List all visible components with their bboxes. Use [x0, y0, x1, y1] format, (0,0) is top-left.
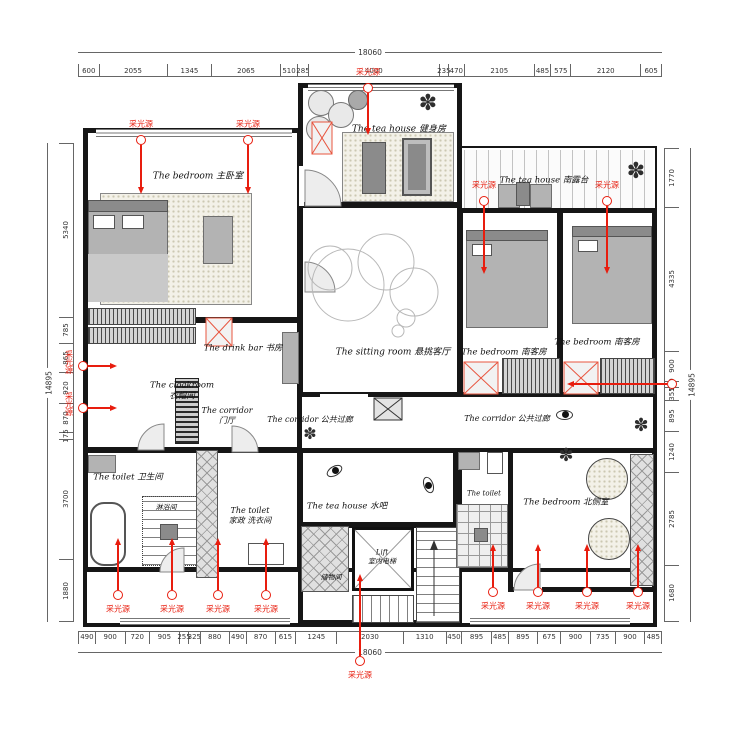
- dim-segment-value: 900: [104, 633, 117, 641]
- dim-segment: 235: [439, 64, 448, 76]
- dim-segment-value: 1240: [668, 443, 676, 461]
- light-source-arrow-tip: [357, 574, 363, 581]
- south-wardrobe-1: [502, 358, 560, 394]
- dim-segment: 1345: [167, 64, 212, 76]
- dim-segment-value: 470: [450, 67, 463, 75]
- room-label: The corridor 公共过廊: [267, 415, 353, 425]
- light-source-arrow-tip: [535, 544, 541, 551]
- dim-segments-bottom: 4909007209052553258804908706151245203013…: [78, 631, 662, 644]
- dim-segment: 900: [665, 351, 679, 382]
- south-bed-2-headboard: [572, 226, 652, 237]
- dim-segment-value: 485: [647, 633, 660, 641]
- room-label: The bedroom 北侧室: [523, 498, 608, 509]
- south-bed-2-pillow: [578, 240, 598, 252]
- light-source-marker: [213, 590, 223, 600]
- light-source-marker: [533, 587, 543, 597]
- room-label: The bedroom 南客房: [461, 348, 546, 359]
- dim-segment-value: 450: [447, 633, 460, 641]
- dim-total-top: 18060: [78, 52, 662, 62]
- light-source-marker: [633, 587, 643, 597]
- dim-segment: 900: [560, 632, 590, 644]
- dim-segment: 1880: [59, 559, 73, 622]
- light-source-label: 采光源: [472, 180, 496, 191]
- south-wardrobe-2: [600, 358, 655, 394]
- room-label: The toilet 卫生间: [93, 473, 163, 484]
- dim-segment-value: 355: [668, 388, 676, 401]
- dim-segment: 880: [200, 632, 229, 644]
- dim-segment: 355: [665, 387, 679, 400]
- dim-segment: 895: [461, 632, 491, 644]
- north-bedroom-wardrobe: [630, 454, 654, 586]
- light-source-marker: [113, 590, 123, 600]
- light-source-marker: [602, 196, 612, 206]
- dim-segment: 2055: [99, 64, 167, 76]
- room-label: The toilet: [467, 490, 501, 499]
- room-label: The tea house 水吧: [307, 502, 387, 513]
- light-source-arrow: [483, 206, 484, 267]
- master-pillow: [122, 215, 144, 229]
- light-source-label: 采光源: [348, 670, 372, 681]
- gym-mat: [342, 132, 454, 202]
- light-source-marker: [488, 587, 498, 597]
- light-source-arrow: [367, 93, 368, 128]
- light-source-arrow-tip: [215, 538, 221, 545]
- light-source-marker: [479, 196, 489, 206]
- master-wardrobe: [88, 308, 196, 325]
- dim-segment-value: 490: [80, 633, 93, 641]
- dim-segment: 870: [246, 632, 275, 644]
- light-source-arrow-tip: [604, 267, 610, 274]
- dim-segment: 895: [508, 632, 538, 644]
- light-source-marker: [78, 361, 88, 371]
- master-pillow: [93, 215, 115, 229]
- light-source-arrow: [117, 545, 118, 590]
- light-source-arrow: [637, 551, 638, 587]
- dim-segment-value: 1880: [62, 582, 70, 600]
- window-balcony-left: [120, 618, 290, 625]
- light-source-arrow: [171, 545, 172, 590]
- light-source-label: 采光源: [129, 119, 153, 130]
- floor-plan: ✽ ✽ ✽ ✽ ✽ 18: [0, 0, 740, 740]
- light-source-marker: [667, 379, 677, 389]
- toilet-fixture: [88, 455, 116, 473]
- dim-segment-value: 1345: [181, 67, 199, 75]
- dim-segment: 175: [59, 432, 73, 439]
- gym-equipment: [362, 142, 386, 194]
- stairs: [416, 527, 460, 623]
- terrace-chair: [530, 184, 552, 208]
- light-source-arrow-tip: [584, 544, 590, 551]
- light-source-label: 采光源: [356, 67, 380, 78]
- south-bed-1-headboard: [466, 230, 548, 241]
- window-gym-top: [308, 84, 454, 91]
- dim-segment: 510: [280, 64, 298, 76]
- dim-segment-value: 1245: [307, 633, 325, 641]
- dim-segment: 2785: [665, 472, 679, 565]
- dim-segment: 900: [95, 632, 125, 644]
- light-source-arrow: [217, 545, 218, 590]
- dim-segment: 905: [149, 632, 179, 644]
- light-source-marker: [136, 135, 146, 145]
- dim-segment-value: 1770: [668, 169, 676, 187]
- dim-total-left-value: 14895: [45, 368, 54, 398]
- dim-segment-value: 895: [668, 409, 676, 422]
- light-source-arrow-tip: [365, 128, 371, 135]
- light-source-label: 采光源: [236, 119, 260, 130]
- dim-segment: 485: [644, 632, 662, 644]
- laundry-cabinet: [196, 450, 218, 578]
- dim-segment: 2120: [570, 64, 640, 76]
- light-source-label: 采光源: [160, 604, 184, 615]
- dim-segment-value: 490: [231, 633, 244, 641]
- dim-segment: 605: [640, 64, 662, 76]
- dim-segment: 600: [78, 64, 99, 76]
- dim-segment: 2030: [336, 632, 402, 644]
- dim-total-right-value: 14895: [688, 370, 697, 400]
- dim-total-bottom: 18060: [78, 652, 662, 662]
- light-source-marker: [355, 656, 365, 666]
- plant-icon: ✽: [303, 426, 316, 442]
- light-source-arrow: [140, 145, 141, 187]
- dim-segment-value: 880: [208, 633, 221, 641]
- dim-segment: 1770: [665, 148, 679, 207]
- dim-segment: 490: [78, 632, 95, 644]
- master-blanket: [88, 254, 168, 302]
- dim-segment-value: 905: [158, 633, 171, 641]
- light-source-label: 采光源: [481, 601, 505, 612]
- room-label: The corridor 公共过廊: [464, 414, 550, 424]
- dim-segment-value: 720: [131, 633, 144, 641]
- dim-segment-value: 785: [62, 324, 70, 337]
- light-source-label: 采光源: [595, 180, 619, 191]
- light-source-marker: [582, 587, 592, 597]
- room-label: The corridor 门厅: [201, 406, 252, 426]
- north-bedroom-rug: [588, 518, 630, 560]
- dim-segment-value: 2055: [124, 67, 142, 75]
- dim-segment: 450: [446, 632, 461, 644]
- dim-segment-value: 510: [282, 67, 295, 75]
- dim-segment: 895: [665, 400, 679, 430]
- master-wardrobe: [88, 327, 196, 344]
- dim-segment-value: 4335: [668, 270, 676, 288]
- light-source-label: 采光源: [64, 350, 75, 374]
- light-source-arrow-tip: [263, 538, 269, 545]
- dim-segment-value: 1680: [668, 584, 676, 602]
- dim-segment-value: 895: [470, 633, 483, 641]
- light-source-arrow-tip: [169, 538, 175, 545]
- small-toilet-sink: [458, 452, 480, 470]
- small-toilet-drain: [474, 528, 488, 542]
- dim-segment-value: 735: [596, 633, 609, 641]
- stairs-landing: [352, 595, 414, 623]
- dim-segment: 1245: [295, 632, 336, 644]
- plant-icon: ✽: [627, 161, 645, 183]
- master-table: [203, 216, 233, 264]
- dim-segment-value: 3700: [62, 490, 70, 508]
- light-source-arrow-tip: [481, 267, 487, 274]
- room-label: 淋浴间: [156, 504, 177, 513]
- wall-sitting-room: [298, 203, 462, 397]
- dim-segment-value: 900: [668, 360, 676, 373]
- light-source-arrow: [586, 551, 587, 587]
- dim-segment-value: 485: [536, 67, 549, 75]
- dim-segment: 720: [125, 632, 149, 644]
- light-source-marker: [167, 590, 177, 600]
- dim-segment-value: 615: [279, 633, 292, 641]
- room-label: Lift 室内电梯: [368, 548, 396, 566]
- plant-icon: ✽: [419, 93, 437, 115]
- light-source-arrow: [88, 365, 110, 366]
- light-source-arrow: [88, 407, 110, 408]
- light-source-label: 采光源: [254, 604, 278, 615]
- light-source-arrow-tip: [110, 405, 117, 411]
- light-source-arrow: [606, 206, 607, 267]
- dim-segment: 675: [537, 632, 560, 644]
- dim-segment: 615: [275, 632, 296, 644]
- room-label: The toilet 家政 洗衣间: [229, 506, 272, 526]
- window-master-top: [96, 129, 292, 137]
- light-source-arrow-tip: [138, 187, 144, 194]
- light-source-marker: [261, 590, 271, 600]
- light-source-label: 采光源: [526, 601, 550, 612]
- light-source-arrow: [574, 383, 667, 384]
- dim-segment: 5340: [59, 143, 73, 317]
- dim-segments-left: 534078586592087017537001880: [59, 143, 74, 622]
- door-gap-master: [299, 166, 304, 206]
- dim-segment: 2105: [464, 64, 534, 76]
- light-source-arrow-tip: [490, 544, 496, 551]
- dim-segment: 325: [188, 632, 199, 644]
- dim-segment-value: 675: [542, 633, 555, 641]
- dim-segment: 485: [534, 64, 551, 76]
- dim-segment: 485: [491, 632, 508, 644]
- dim-segment-value: 900: [569, 633, 582, 641]
- light-source-marker: [363, 83, 373, 93]
- plant-icon: ✽: [558, 447, 573, 465]
- dim-segment: 4335: [665, 207, 679, 350]
- room-label: The drink bar 书房: [204, 344, 283, 355]
- door-gap-sitting: [320, 394, 368, 400]
- dim-segment-value: 2785: [668, 510, 676, 528]
- dim-segment-value: 900: [623, 633, 636, 641]
- light-source-arrow: [247, 145, 248, 187]
- gym-sofa: [306, 116, 332, 142]
- dim-segment-value: 605: [644, 67, 657, 75]
- gym-round-table: [348, 90, 368, 110]
- dim-segment: 3700: [59, 439, 73, 560]
- dim-segment: 1240: [665, 431, 679, 473]
- gym-treadmill-belt: [408, 144, 426, 190]
- light-source-marker: [243, 135, 253, 145]
- light-source-arrow-tip: [567, 381, 574, 387]
- dim-segment-value: 600: [82, 67, 95, 75]
- dim-segment: 785: [59, 317, 73, 343]
- window-balcony-right: [470, 618, 630, 625]
- dim-segment: 285: [297, 64, 307, 76]
- dim-segment-value: 485: [493, 633, 506, 641]
- dim-total-right: 14895: [690, 148, 702, 622]
- light-source-label: 采光源: [575, 601, 599, 612]
- dim-segment-value: 2120: [597, 67, 615, 75]
- bathtub: [90, 502, 126, 566]
- dim-segment-value: 895: [516, 633, 529, 641]
- dim-segment: 575: [550, 64, 570, 76]
- dim-segment-value: 1310: [416, 633, 434, 641]
- dim-segment-value: 2105: [490, 67, 508, 75]
- room-label: The bedroom 南客房: [554, 338, 639, 349]
- light-source-label: 采光源: [106, 604, 130, 615]
- dim-total-top-value: 18060: [355, 48, 385, 57]
- dim-segment-value: 5340: [62, 221, 70, 239]
- room-label: The sitting room 悬挑客厅: [336, 347, 451, 358]
- light-source-arrow-tip: [115, 538, 121, 545]
- dim-segment-value: 575: [554, 67, 567, 75]
- south-bed-1-pillow: [472, 244, 492, 256]
- light-source-arrow: [265, 545, 266, 590]
- dim-segment: 735: [590, 632, 615, 644]
- light-source-label: 采光源: [626, 601, 650, 612]
- light-source-arrow-tip: [245, 187, 251, 194]
- room-label: The cloakroom 衣帽间: [150, 380, 214, 401]
- dim-segment: 490: [229, 632, 246, 644]
- room-label: The tea house 南露台: [500, 176, 589, 187]
- small-toilet-wc: [487, 452, 503, 474]
- plant-icon: ✽: [633, 417, 648, 435]
- room-label: The bedroom 主卧室: [153, 171, 243, 182]
- light-source-label: 采光源: [206, 604, 230, 615]
- light-source-marker: [78, 403, 88, 413]
- dim-segment-value: 870: [254, 633, 267, 641]
- dim-segment: 470: [448, 64, 464, 76]
- light-source-arrow: [359, 581, 360, 656]
- light-source-arrow: [537, 551, 538, 587]
- dim-total-left: 14895: [47, 143, 59, 622]
- light-source-arrow-tip: [110, 363, 117, 369]
- room-label: 储物间: [321, 574, 342, 583]
- study-desk: [282, 332, 299, 384]
- light-source-arrow-tip: [635, 544, 641, 551]
- light-source-arrow: [492, 551, 493, 587]
- dim-segment: 2065: [211, 64, 279, 76]
- wall-tea-house-bar: [298, 448, 462, 527]
- light-source-label: 采光源: [64, 392, 75, 416]
- north-bedroom-rug: [586, 458, 628, 500]
- dim-segment: 1310: [403, 632, 446, 644]
- master-bed-headboard: [88, 200, 168, 212]
- dim-segment-value: 2030: [361, 633, 379, 641]
- dim-segment: 900: [615, 632, 645, 644]
- dim-segment: 1680: [665, 565, 679, 622]
- dim-segment-value: 2065: [237, 67, 255, 75]
